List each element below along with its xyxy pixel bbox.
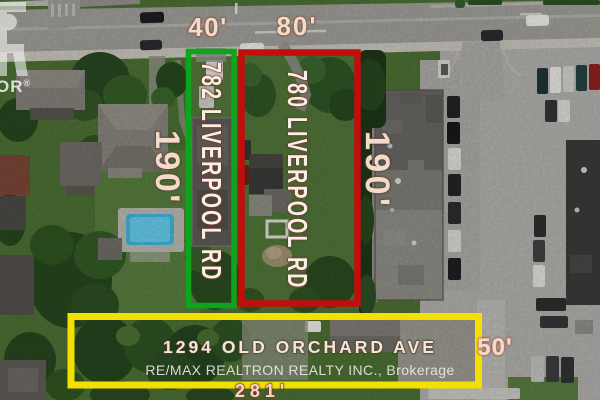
svg-text:50': 50': [477, 334, 512, 361]
svg-text:281': 281': [235, 381, 289, 400]
svg-text:1294 OLD ORCHARD AVE: 1294 OLD ORCHARD AVE: [163, 337, 437, 357]
svg-text:RE/MAX REALTRON REALTY INC., B: RE/MAX REALTRON REALTY INC., Brokerage: [145, 362, 454, 378]
svg-text:780 LIVERPOOL RD: 780 LIVERPOOL RD: [281, 70, 312, 290]
svg-text:40': 40': [188, 12, 228, 42]
svg-text:190': 190': [148, 130, 186, 205]
svg-text:190': 190': [358, 131, 396, 209]
svg-text:782 LIVERPOOL RD: 782 LIVERPOOL RD: [195, 62, 226, 282]
svg-text:80': 80': [276, 11, 317, 41]
